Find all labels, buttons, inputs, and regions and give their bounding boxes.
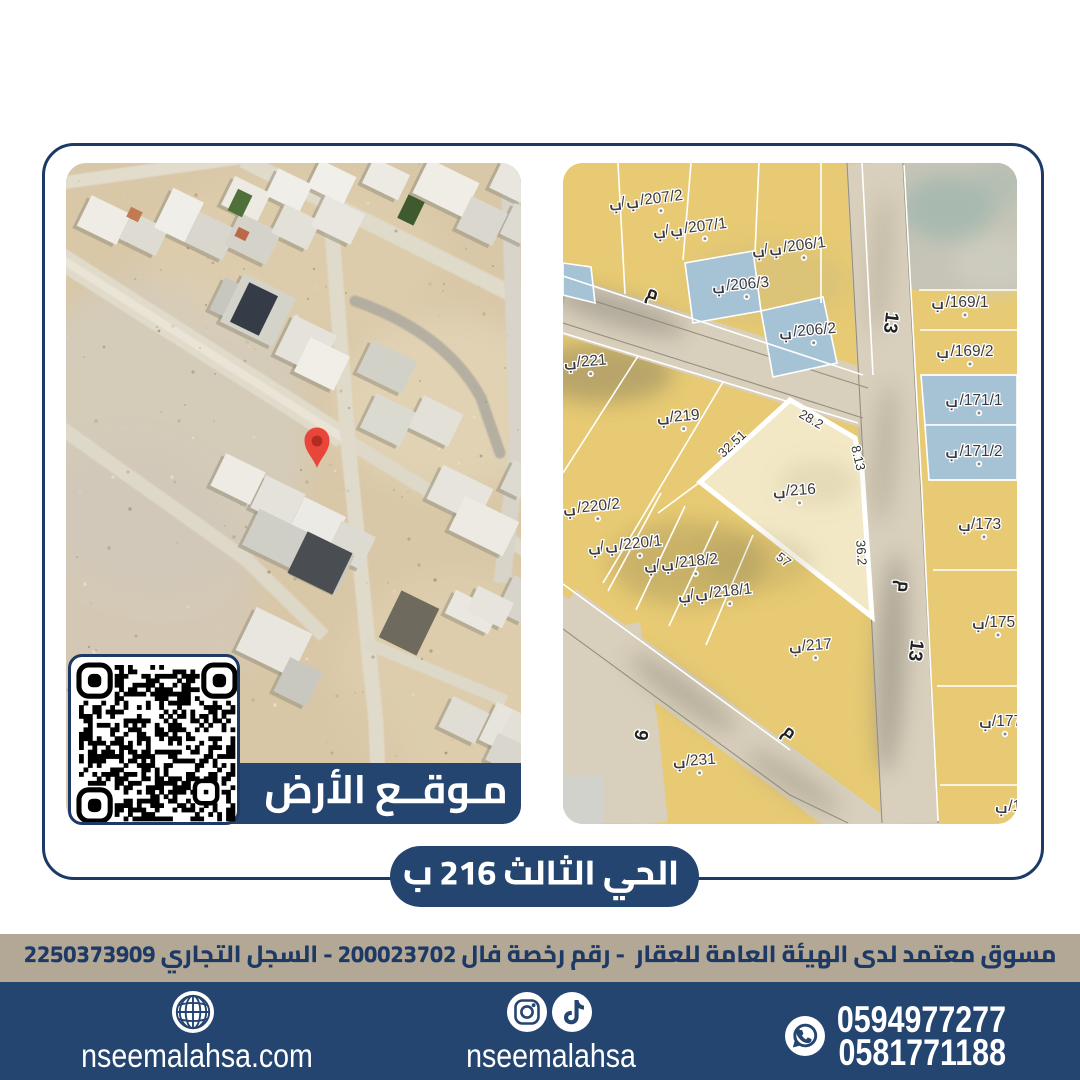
svg-text:/217: /217: [801, 636, 832, 655]
svg-text:/177: /177: [992, 713, 1017, 730]
svg-text:/169/2: /169/2: [950, 343, 993, 360]
svg-text:/219: /219: [669, 406, 701, 426]
svg-text:/171/2: /171/2: [959, 443, 1002, 460]
svg-text:/216: /216: [785, 481, 816, 500]
svg-text:/169/1: /169/1: [945, 294, 988, 311]
svg-text:/231: /231: [685, 751, 716, 770]
svg-text:/171/1: /171/1: [959, 392, 1002, 409]
svg-text:/221: /221: [576, 351, 608, 371]
svg-text:36.2: 36.2: [853, 540, 870, 566]
svg-text:/175: /175: [985, 614, 1015, 631]
svg-text:/173: /173: [971, 516, 1001, 533]
svg-text:13: 13: [904, 639, 927, 663]
svg-text:13: 13: [879, 311, 902, 335]
